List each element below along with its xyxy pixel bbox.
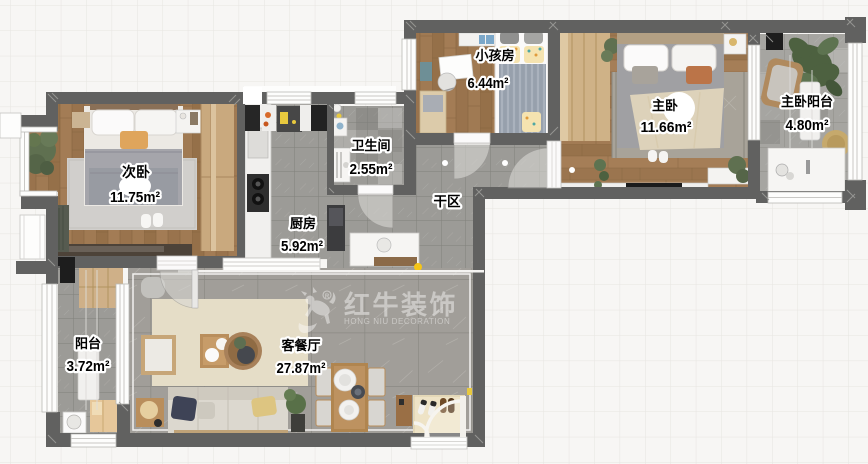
svg-text:HONG NIU DECORATION: HONG NIU DECORATION xyxy=(344,317,450,326)
svg-text:3.72m²: 3.72m² xyxy=(67,358,110,375)
svg-text:2.55m²: 2.55m² xyxy=(350,161,393,178)
svg-text:主卧: 主卧 xyxy=(652,98,678,113)
svg-text:红牛装饰: 红牛装饰 xyxy=(344,290,458,320)
svg-text:R: R xyxy=(325,294,330,300)
svg-text:干区: 干区 xyxy=(434,194,461,209)
svg-text:厨房: 厨房 xyxy=(290,216,316,231)
svg-text:小孩房: 小孩房 xyxy=(475,48,514,63)
svg-text:11.75m²: 11.75m² xyxy=(110,189,160,206)
svg-text:27.87m²: 27.87m² xyxy=(277,360,326,377)
svg-text:5.92m²: 5.92m² xyxy=(281,238,323,255)
svg-text:客餐厅: 客餐厅 xyxy=(281,338,320,353)
svg-text:6.44m²: 6.44m² xyxy=(468,75,509,92)
svg-text:主卧阳台: 主卧阳台 xyxy=(781,94,833,109)
svg-text:次卧: 次卧 xyxy=(122,164,150,180)
svg-text:阳台: 阳台 xyxy=(75,336,101,351)
svg-text:卫生间: 卫生间 xyxy=(351,138,390,153)
svg-text:11.66m²: 11.66m² xyxy=(641,119,692,136)
svg-text:4.80m²: 4.80m² xyxy=(786,117,829,134)
